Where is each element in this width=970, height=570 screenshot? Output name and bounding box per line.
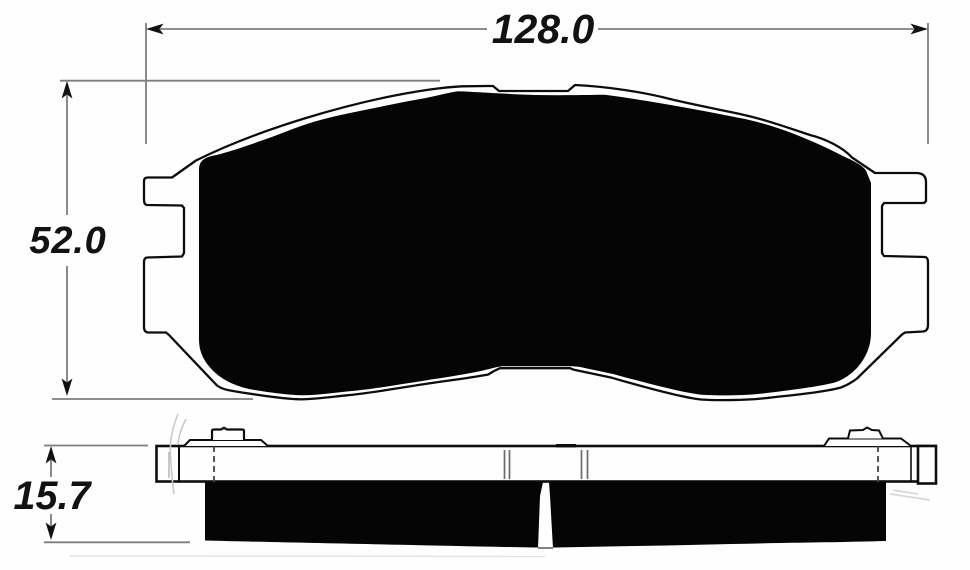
svg-text:15.7: 15.7 bbox=[14, 474, 93, 518]
svg-text:128.0: 128.0 bbox=[492, 6, 595, 52]
svg-text:52.0: 52.0 bbox=[29, 220, 106, 262]
